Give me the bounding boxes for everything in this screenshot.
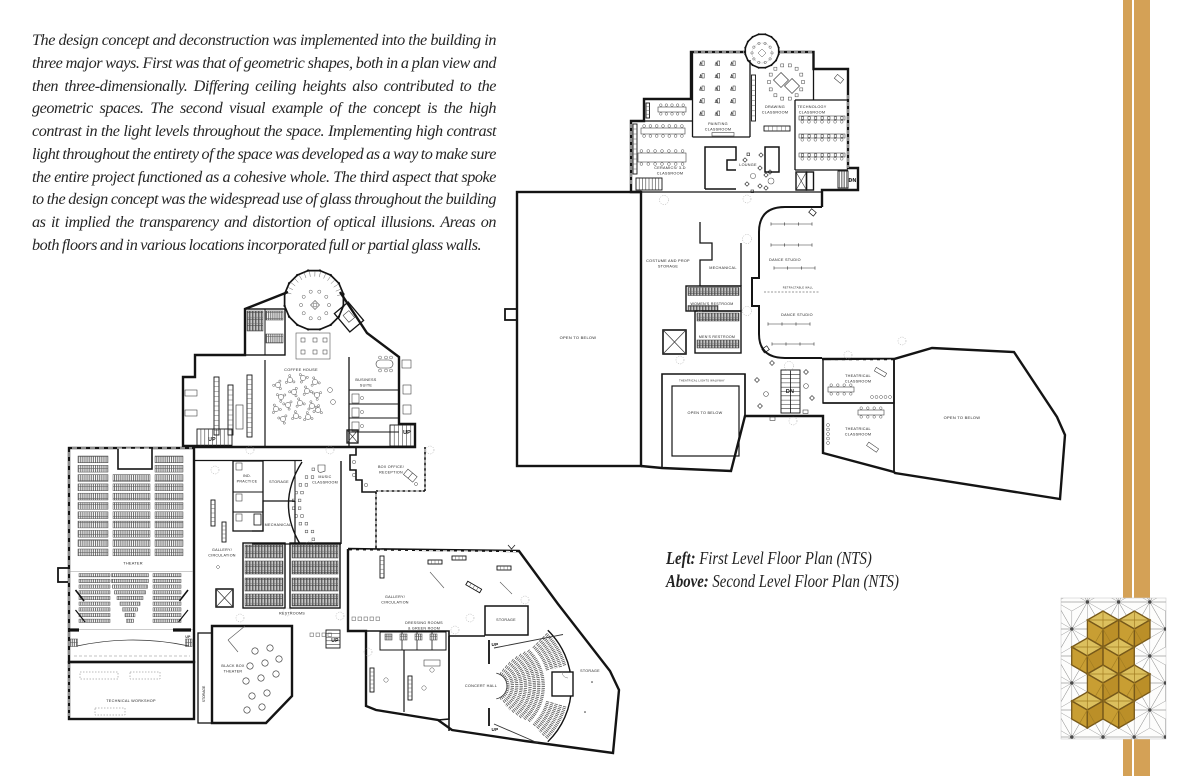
svg-text:MEN'S RESTROOM: MEN'S RESTROOM [699, 335, 735, 339]
svg-text:PAINTING: PAINTING [708, 122, 728, 126]
svg-text:CLASSROOM: CLASSROOM [657, 172, 684, 176]
svg-text:& GREEN ROOM: & GREEN ROOM [408, 627, 440, 631]
svg-text:DN: DN [849, 178, 857, 184]
svg-text:MUSIC: MUSIC [318, 475, 331, 479]
svg-text:CERAMICS/ 3-D: CERAMICS/ 3-D [654, 166, 686, 170]
svg-text:DRAWING: DRAWING [765, 105, 785, 109]
svg-text:TECHNICAL WORKSHOP: TECHNICAL WORKSHOP [106, 699, 156, 703]
svg-text:LOUNGE: LOUNGE [739, 163, 757, 167]
svg-text:DRESSING ROOMS: DRESSING ROOMS [405, 621, 443, 625]
svg-text:CLASSROOM: CLASSROOM [845, 433, 872, 437]
svg-text:BUSINESS: BUSINESS [355, 378, 376, 382]
svg-text:UP: UP [185, 635, 191, 639]
svg-text:BLACK BOX: BLACK BOX [221, 664, 244, 668]
svg-text:STORAGE: STORAGE [658, 265, 678, 269]
svg-text:OPEN TO BELOW: OPEN TO BELOW [688, 411, 723, 415]
svg-text:UP: UP [403, 430, 411, 436]
svg-text:UP: UP [492, 642, 499, 647]
svg-text:THEATER: THEATER [224, 670, 243, 674]
svg-text:STORAGE: STORAGE [269, 480, 289, 484]
svg-text:CLASSROOM: CLASSROOM [799, 111, 826, 115]
svg-text:PRACTICE: PRACTICE [237, 480, 258, 484]
svg-text:COSTUME AND PROP: COSTUME AND PROP [646, 259, 690, 263]
svg-text:COFFEE HOUSE: COFFEE HOUSE [284, 367, 318, 372]
svg-text:GALLERY/: GALLERY/ [212, 548, 233, 552]
svg-text:CLASSROOM: CLASSROOM [845, 380, 872, 384]
svg-text:OPEN TO BELOW: OPEN TO BELOW [560, 335, 597, 340]
svg-text:OPEN TO BELOW: OPEN TO BELOW [944, 415, 981, 420]
svg-text:DANCE STUDIO: DANCE STUDIO [769, 258, 801, 262]
svg-text:DANCE STUDIO: DANCE STUDIO [781, 313, 813, 317]
svg-text:CONCERT HALL: CONCERT HALL [465, 684, 497, 688]
svg-text:STORAGE: STORAGE [496, 618, 516, 622]
svg-text:STORAGE: STORAGE [202, 685, 206, 702]
svg-text:IND.: IND. [243, 474, 251, 478]
svg-text:BOX OFFICE/: BOX OFFICE/ [378, 465, 405, 469]
svg-text:THEATER: THEATER [123, 561, 143, 566]
svg-text:TECHNOLOGY: TECHNOLOGY [797, 105, 826, 109]
svg-text:UP: UP [492, 727, 499, 732]
svg-text:RECEPTION: RECEPTION [379, 471, 403, 475]
svg-text:STORAGE: STORAGE [580, 669, 600, 673]
svg-text:THEATRICAL: THEATRICAL [845, 427, 871, 431]
svg-text:CLASSROOM: CLASSROOM [312, 481, 338, 485]
svg-text:CLASSROOM: CLASSROOM [762, 111, 789, 115]
svg-text:MECHANICAL: MECHANICAL [709, 266, 736, 270]
svg-text:CIRCULATION: CIRCULATION [208, 554, 236, 558]
svg-text:THEATRICAL LIGHTS WALKWAY: THEATRICAL LIGHTS WALKWAY [679, 379, 725, 383]
svg-text:GALLERY/: GALLERY/ [385, 595, 406, 599]
svg-text:CLASSROOM: CLASSROOM [705, 128, 732, 132]
svg-text:THEATRICAL: THEATRICAL [845, 374, 871, 378]
svg-text:CIRCULATION: CIRCULATION [381, 601, 409, 605]
svg-text:UP: UP [331, 638, 339, 644]
svg-text:RETRACTABLE WALL: RETRACTABLE WALL [783, 286, 814, 290]
svg-text:DN: DN [786, 389, 794, 395]
svg-text:MECHANICAL: MECHANICAL [265, 523, 292, 527]
svg-text:SUITE: SUITE [360, 384, 373, 388]
svg-text:UP: UP [208, 437, 216, 443]
